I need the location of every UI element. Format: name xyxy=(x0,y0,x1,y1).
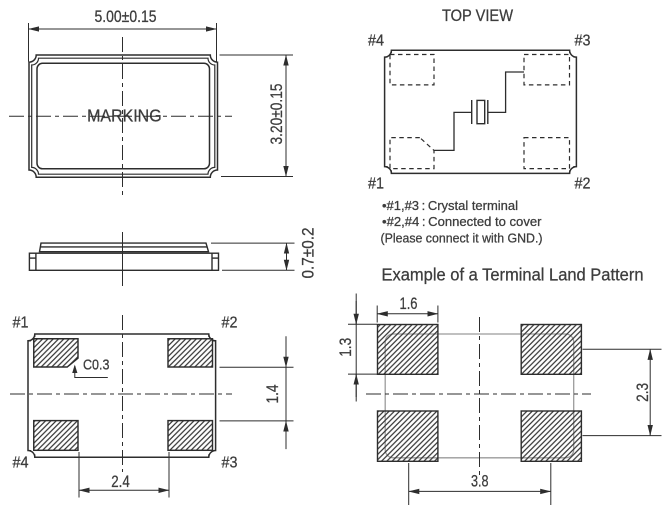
svg-text:#1: #1 xyxy=(368,176,384,193)
svg-text:5.00±0.15: 5.00±0.15 xyxy=(95,8,157,26)
svg-text:#3: #3 xyxy=(575,32,591,49)
svg-text:0.7±0.2: 0.7±0.2 xyxy=(300,228,318,279)
svg-text:2.3: 2.3 xyxy=(634,383,652,402)
svg-text:MARKING: MARKING xyxy=(87,105,162,125)
svg-text:3.20±0.15: 3.20±0.15 xyxy=(268,84,286,145)
svg-text:TOP VIEW: TOP VIEW xyxy=(442,7,513,25)
svg-text:#4: #4 xyxy=(368,32,384,49)
svg-text:1.6: 1.6 xyxy=(400,295,418,313)
svg-text:#1: #1 xyxy=(13,315,29,332)
svg-text:1.4: 1.4 xyxy=(264,385,282,404)
svg-text:(Please connect it with GND.): (Please connect it with GND.) xyxy=(381,230,543,245)
svg-text:#2: #2 xyxy=(575,176,591,193)
svg-text:#3: #3 xyxy=(222,455,238,472)
svg-text:Example of a Terminal Land Pat: Example of a Terminal Land Pattern xyxy=(382,265,644,285)
svg-text:2.4: 2.4 xyxy=(111,473,130,491)
svg-text:C0.3: C0.3 xyxy=(83,358,110,374)
svg-text:3.8: 3.8 xyxy=(471,473,489,491)
svg-text:•#2,#4 : Connected to cover: •#2,#4 : Connected to cover xyxy=(382,214,542,229)
svg-text:#4: #4 xyxy=(13,455,29,472)
svg-text:#2: #2 xyxy=(222,315,238,332)
svg-text:1.3: 1.3 xyxy=(337,338,355,357)
svg-text:•#1,#3 : Crystal terminal: •#1,#3 : Crystal terminal xyxy=(382,198,518,213)
